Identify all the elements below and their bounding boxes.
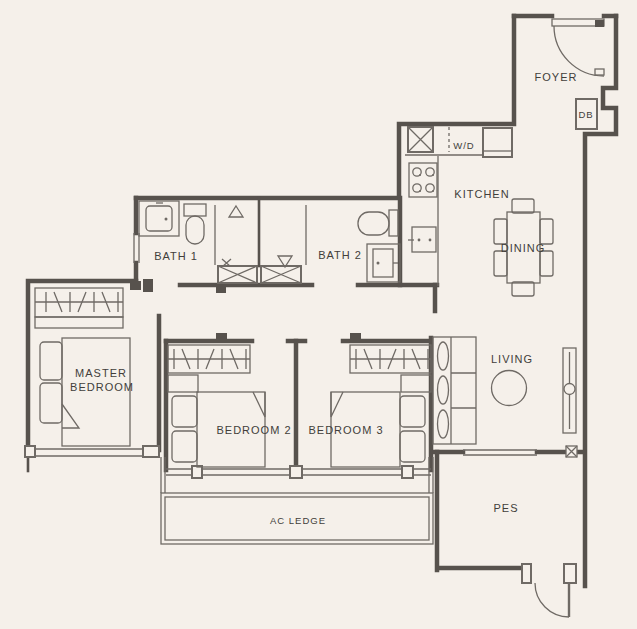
bath2-label: BATH 2 bbox=[318, 249, 362, 261]
wall-post bbox=[216, 333, 227, 341]
window-post bbox=[290, 466, 302, 478]
master-bedroom-label-line2: BEDROOM bbox=[70, 381, 134, 393]
door-hinge bbox=[595, 20, 604, 27]
window-post bbox=[25, 446, 35, 457]
living-label: LIVING bbox=[491, 353, 533, 365]
bedroom3-label: BEDROOM 3 bbox=[308, 424, 383, 436]
window-post bbox=[143, 446, 159, 457]
wall-post bbox=[143, 279, 153, 292]
paper-background bbox=[0, 0, 637, 629]
db-box: DB bbox=[576, 99, 597, 129]
ac-ledge-label: AC LEDGE bbox=[270, 515, 326, 526]
foyer-label: FOYER bbox=[535, 71, 578, 83]
window-post bbox=[402, 466, 413, 478]
kitchen-label: KITCHEN bbox=[454, 188, 509, 200]
wall-post bbox=[216, 285, 226, 293]
ledge-x-icon bbox=[218, 266, 257, 283]
pes-x-icon bbox=[566, 446, 577, 457]
pes-label: PES bbox=[493, 502, 518, 514]
wall-post bbox=[350, 333, 361, 341]
wall-post bbox=[130, 281, 141, 290]
bath1-label: BATH 1 bbox=[154, 250, 198, 262]
wd-label: W/D bbox=[453, 140, 474, 151]
bedroom2-label: BEDROOM 2 bbox=[216, 424, 291, 436]
ledge-x-icon bbox=[261, 266, 301, 283]
dining-label: DINING bbox=[501, 242, 546, 254]
floor-plan-drawing: DB bbox=[0, 0, 637, 629]
window-post bbox=[192, 466, 202, 478]
floor-plan: DB bbox=[0, 0, 637, 629]
master-bedroom-label-line1: MASTER bbox=[75, 367, 127, 379]
db-label: DB bbox=[578, 109, 593, 120]
